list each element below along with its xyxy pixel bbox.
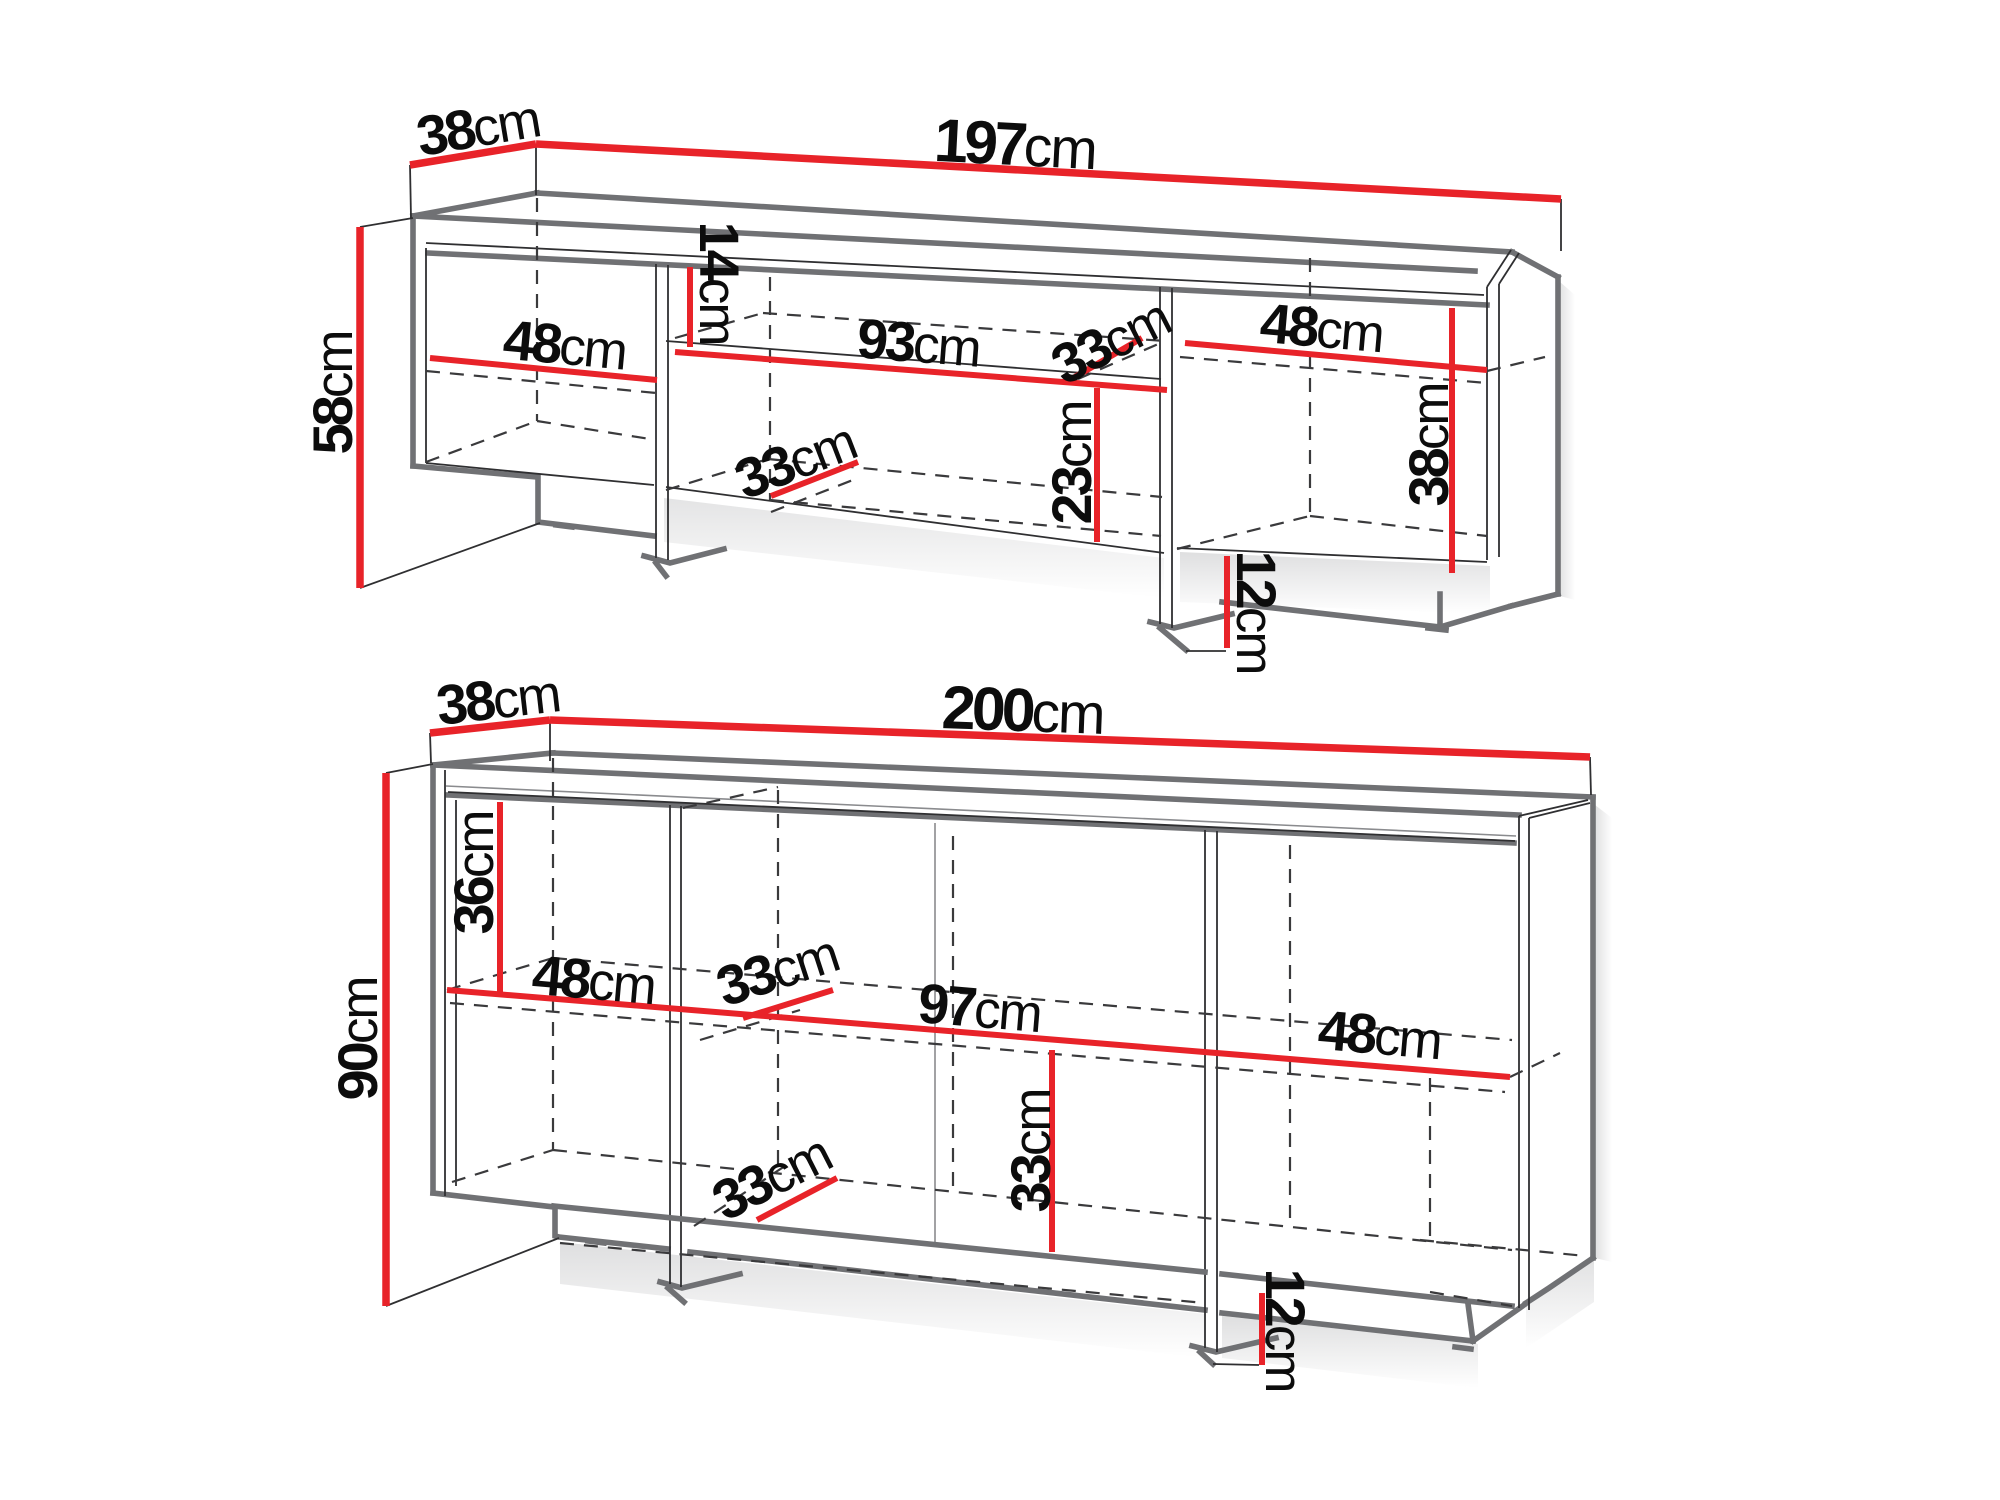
svg-text:12cm: 12cm [1225,551,1288,674]
svg-text:33cm: 33cm [999,1090,1062,1213]
svg-text:48cm: 48cm [501,308,629,382]
svg-text:38cm: 38cm [412,86,544,168]
svg-text:97cm: 97cm [916,971,1044,1044]
svg-text:197cm: 197cm [933,106,1098,182]
svg-text:38cm: 38cm [1397,384,1460,507]
svg-text:48cm: 48cm [530,943,658,1016]
svg-text:36cm: 36cm [442,812,505,935]
svg-text:90cm: 90cm [326,978,389,1101]
svg-text:23cm: 23cm [1040,402,1103,525]
svg-text:33cm: 33cm [1041,285,1179,397]
svg-text:14cm: 14cm [688,222,751,345]
svg-text:12cm: 12cm [1254,1269,1317,1392]
svg-text:200cm: 200cm [941,673,1105,747]
svg-text:58cm: 58cm [301,332,364,455]
svg-text:38cm: 38cm [433,660,562,737]
svg-text:93cm: 93cm [855,306,982,378]
svg-text:48cm: 48cm [1316,998,1444,1071]
svg-text:33cm: 33cm [726,408,863,511]
